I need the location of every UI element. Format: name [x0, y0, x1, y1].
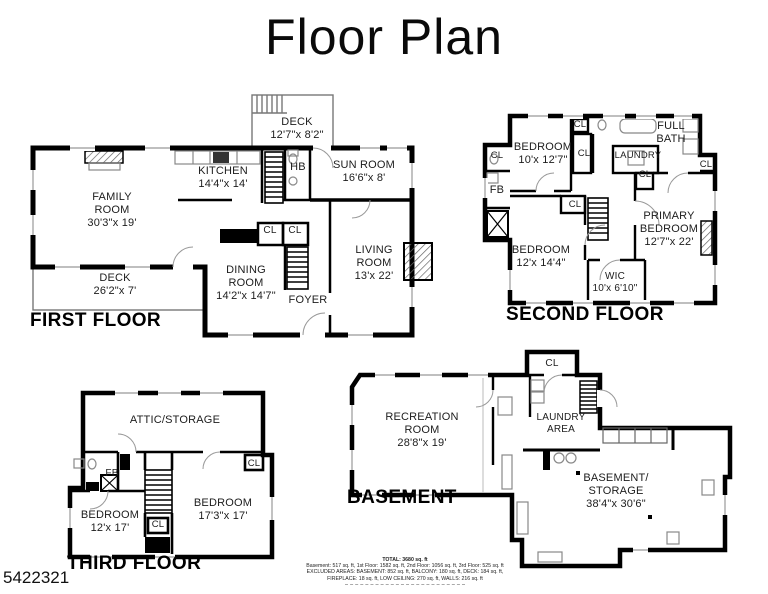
room-label-closet-laundry: CL [639, 170, 652, 180]
room-label-closet-left: CL [491, 151, 504, 161]
listing-number: 5422321 [3, 568, 69, 588]
room-label-closet-basement: CL [545, 358, 558, 370]
floor-plan-sheet: Floor Plan [0, 0, 768, 594]
room-label-wic: WIC 10'x 6'10" [593, 271, 638, 295]
room-label-bedroom-rear: BEDROOM 12'x 14'4" [512, 244, 570, 270]
room-label-closet-center3: CL [152, 520, 165, 530]
room-label-attic: ATTIC/STORAGE [130, 414, 220, 427]
room-label-closet-right3: CL [248, 459, 261, 469]
excluded-areas-2: FIREPLACE: 18 sq. ft, LOW CEILING: 270 s… [245, 576, 565, 582]
room-label-bedroom-right3: BEDROOM 17'3"x 17' [194, 497, 252, 523]
room-label-laundry-area: LAUNDRY AREA [536, 412, 585, 436]
third-floor-title: THIRD FLOOR [67, 553, 201, 575]
room-label-deck-upper: DECK 12'7"x 8'2" [270, 116, 323, 142]
room-label-deck-lower: DECK 26'2"x 7' [94, 272, 137, 298]
room-label-foyer: FOYER [289, 294, 328, 307]
area-summary: TOTAL: 3680 sq. ft Basement: 517 sq. ft,… [245, 557, 565, 585]
room-label-fb: FB [490, 184, 504, 197]
room-label-storage: BASEMENT/ STORAGE 38'4"x 30'6" [583, 472, 648, 511]
room-label-full-bath: FULL BATH [656, 120, 685, 146]
room-label-sun-room: SUN ROOM 16'6"x 8' [333, 159, 395, 185]
room-label-kitchen: KITCHEN 14'4"x 14' [198, 165, 248, 191]
first-floor-title: FIRST FLOOR [30, 310, 161, 332]
room-label-closet-bedroom: CL [569, 200, 582, 210]
room-label-closet-top: CL [574, 120, 587, 130]
basement-drawing [330, 345, 740, 570]
room-label-bedroom-front: BEDROOM 10'x 12'7" [514, 141, 572, 167]
room-label-closet-mid: CL [578, 149, 591, 159]
room-label-closet-right: CL [700, 160, 713, 170]
room-label-bedroom-left3: BEDROOM 12'x 17' [81, 509, 139, 535]
second-floor-title: SECOND FLOOR [506, 304, 664, 326]
room-label-living-room: LIVING ROOM 13'x 22' [355, 244, 394, 283]
room-label-closet-a: CL [263, 225, 276, 237]
room-label-closet-b: CL [288, 225, 301, 237]
page-title: Floor Plan [0, 8, 768, 66]
room-label-half-bath: HB [290, 161, 306, 174]
basement-title: BASEMENT [347, 487, 457, 509]
room-label-primary-bedroom: PRIMARY BEDROOM 12'7"x 22' [640, 210, 698, 249]
room-label-laundry: LAUNDRY [615, 151, 662, 161]
room-label-recreation-room: RECREATION ROOM 28'8"x 19' [385, 411, 458, 450]
room-label-dining-room: DINING ROOM 14'2"x 14'7" [216, 264, 276, 303]
third-floor-drawing [60, 380, 295, 580]
room-label-fb3: FB [105, 468, 118, 480]
footer-divider [345, 584, 465, 585]
room-label-family-room: FAMILY ROOM 30'3"x 19' [87, 191, 136, 230]
